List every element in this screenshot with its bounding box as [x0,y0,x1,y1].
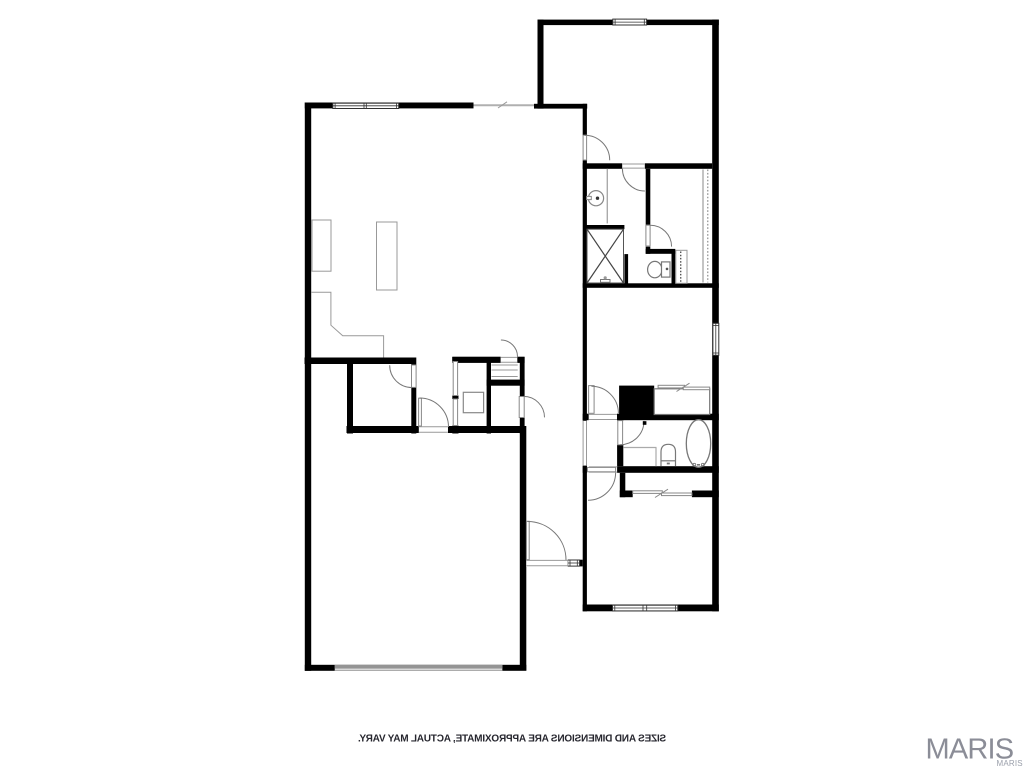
svg-text:SIZES AND DIMENSIONS ARE APPRO: SIZES AND DIMENSIONS ARE APPROXIMATE, AC… [358,734,666,745]
svg-text:MARIS: MARIS [997,759,1023,768]
